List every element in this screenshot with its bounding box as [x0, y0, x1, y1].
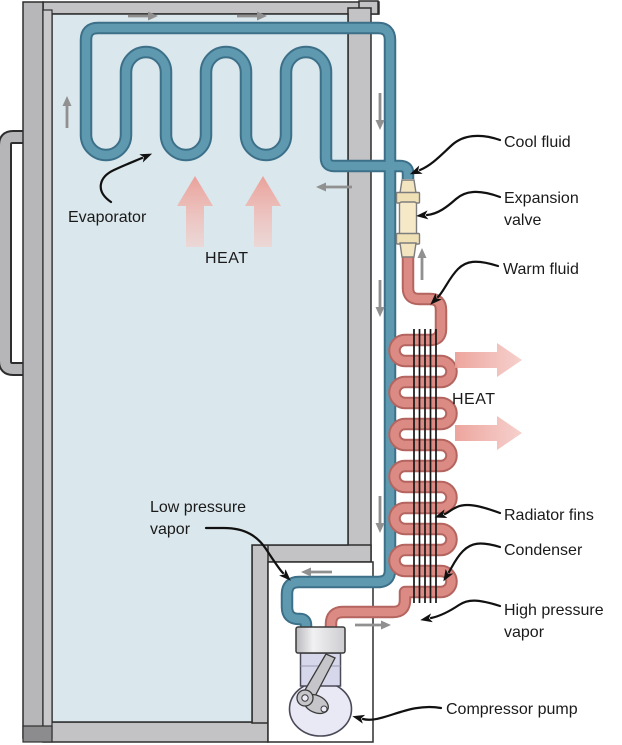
cabinet-top-band	[43, 2, 379, 14]
label-heat-inside: HEAT	[205, 248, 248, 270]
label-evaporator: Evaporator	[68, 207, 146, 229]
expansion-valve	[397, 180, 420, 257]
label-high-pressure-vapor: High pressure vapor	[504, 600, 622, 644]
cabinet-bottom-band	[43, 722, 268, 742]
label-cool-fluid: Cool fluid	[504, 132, 571, 154]
leader-high-pressure-vapor	[431, 601, 500, 618]
notch-left-band	[252, 545, 268, 723]
heat-right-arrow-icon	[455, 343, 522, 377]
leader-condenser	[449, 544, 500, 572]
label-condenser: Condenser	[504, 540, 582, 562]
door-handle-fill	[5, 137, 23, 369]
label-compressor-pump: Compressor pump	[446, 699, 578, 721]
crank-pivot-hole	[302, 695, 308, 701]
cabinet-right-wall	[348, 8, 371, 562]
label-expansion-valve: Expansion valve	[504, 188, 598, 232]
label-radiator-fins: Radiator fins	[504, 505, 594, 527]
crank-lobe-hole	[321, 706, 327, 712]
compressor-cap	[296, 627, 345, 653]
leader-expansion-valve	[427, 192, 500, 215]
label-warm-fluid: Warm fluid	[503, 259, 579, 281]
leader-compressor-pump	[363, 707, 441, 720]
fridge-door	[23, 2, 43, 738]
door-bottom-step	[23, 726, 52, 742]
refrigerator-diagram: Evaporator HEAT Cool fluid Expansion val…	[0, 0, 622, 745]
label-low-pressure-vapor: Low pressure vapor	[150, 497, 276, 541]
leader-warm-fluid	[438, 262, 498, 297]
door-edge-strip	[43, 10, 52, 738]
label-heat-outside: HEAT	[452, 389, 495, 411]
leader-cool-fluid	[420, 136, 500, 170]
heat-right-arrow-icon	[455, 416, 522, 450]
